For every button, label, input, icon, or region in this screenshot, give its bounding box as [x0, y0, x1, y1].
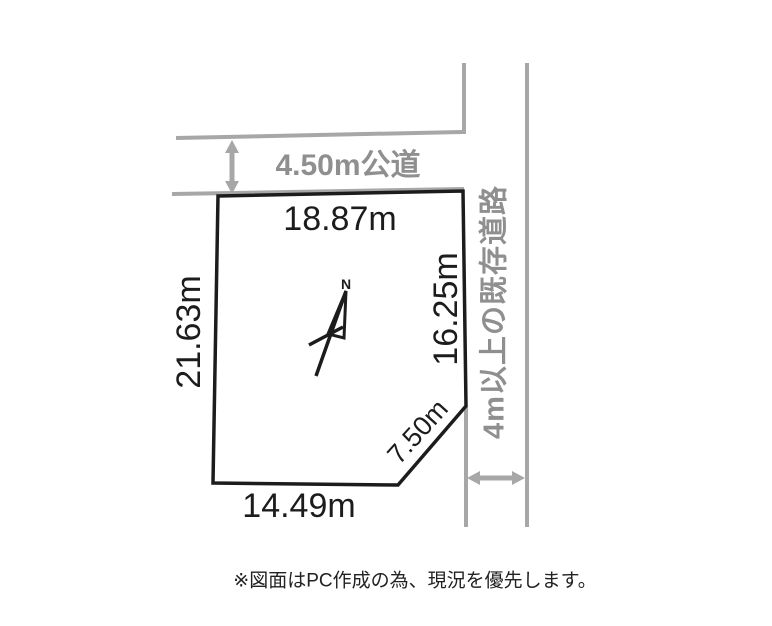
right-road-width-arrowhead-right — [512, 471, 525, 485]
right-road-width-arrowhead-left — [467, 471, 480, 485]
north-label: N — [341, 276, 351, 292]
right-road-label: 4m以上の既存道路 — [481, 185, 510, 439]
land-plot-diagram: N 4.50m公道 4m以上の既存道路 18.87m 21.63m 16.25m… — [0, 0, 772, 626]
top-road-upper-line — [176, 132, 462, 138]
top-road-width-arrowhead-up — [225, 140, 239, 153]
dimension-left: 21.63m — [172, 275, 206, 388]
plot-drawing-svg: N — [0, 0, 772, 626]
dimension-top: 18.87m — [283, 202, 396, 236]
disclaimer-note: ※図面はPC作成の為、現況を優先します。 — [233, 572, 596, 591]
top-road-label: 4.50m公道 — [275, 151, 420, 181]
dimension-bottom: 14.49m — [242, 489, 355, 523]
dimension-right: 16.25m — [429, 252, 463, 365]
